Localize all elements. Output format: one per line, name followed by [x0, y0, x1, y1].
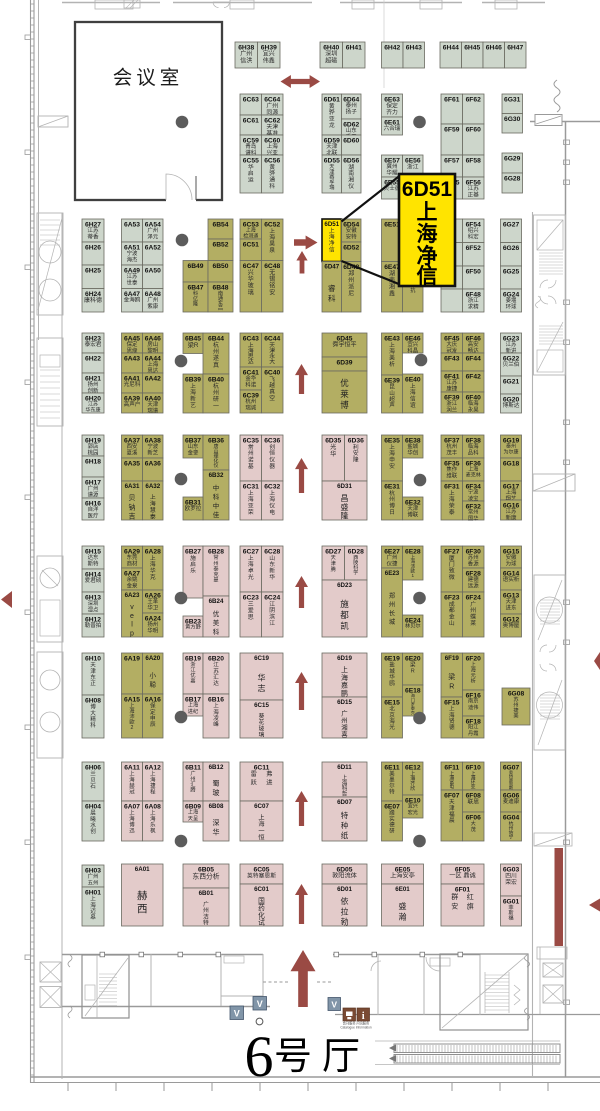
svg-text:东西分析: 东西分析 — [192, 871, 219, 880]
svg-text:华明: 华明 — [147, 626, 158, 634]
svg-text:6H04: 6H04 — [85, 804, 101, 811]
svg-text:6D31: 6D31 — [337, 483, 352, 490]
svg-text:6D51: 6D51 — [402, 178, 453, 201]
svg-text:勒普拍: 勒普拍 — [85, 621, 102, 629]
svg-text:泰宏君: 泰宏君 — [85, 340, 102, 348]
svg-text:天津: 天津 — [266, 123, 278, 130]
svg-text:黄骅亚龙: 黄骅亚龙 — [329, 102, 335, 129]
svg-text:6H38: 6H38 — [238, 45, 254, 52]
svg-text:广州: 广州 — [240, 50, 252, 58]
svg-text:远源: 远源 — [468, 581, 479, 589]
svg-text:自洋: 自洋 — [88, 505, 99, 513]
svg-text:信洪: 信洪 — [240, 57, 252, 65]
svg-text:6F50: 6F50 — [466, 269, 482, 276]
svg-text:安徽: 安徽 — [346, 226, 357, 234]
svg-text:山东新华: 山东新华 — [269, 554, 275, 581]
svg-text:6F62: 6F62 — [466, 97, 482, 104]
svg-text:瑞诚: 瑞诚 — [245, 403, 256, 411]
svg-text:6F61: 6F61 — [444, 97, 460, 104]
svg-text:6A36: 6A36 — [145, 461, 161, 468]
svg-text:南京: 南京 — [468, 697, 478, 705]
svg-text:6A19: 6A19 — [124, 656, 140, 663]
svg-text:保定: 保定 — [127, 340, 138, 348]
svg-text:泰州: 泰州 — [346, 101, 357, 109]
svg-text:6B24: 6B24 — [209, 598, 224, 605]
svg-text:姜堰: 姜堰 — [506, 296, 517, 304]
svg-text:保定: 保定 — [386, 101, 398, 109]
svg-text:杭州研一: 杭州研一 — [213, 382, 219, 410]
svg-text:6E35: 6E35 — [384, 438, 400, 445]
svg-text:6A16: 6A16 — [145, 697, 161, 704]
svg-text:6D01: 6D01 — [337, 886, 352, 893]
svg-text:苏州捷美: 苏州捷美 — [513, 695, 519, 719]
svg-text:上海嘉鹏: 上海嘉鹏 — [341, 665, 348, 697]
svg-text:浙江优嘉: 浙江优嘉 — [190, 660, 195, 684]
svg-text:山东: 山东 — [188, 442, 199, 450]
svg-text:宁波: 宁波 — [147, 442, 158, 450]
svg-text:博斯达: 博斯达 — [503, 401, 520, 409]
svg-text:6H26: 6H26 — [85, 245, 101, 252]
svg-text:6H22: 6H22 — [85, 356, 101, 363]
svg-text:求精: 求精 — [468, 302, 479, 310]
svg-text:6C15: 6C15 — [254, 702, 269, 709]
svg-text:6D39: 6D39 — [337, 360, 353, 367]
svg-text:广州: 广州 — [387, 553, 398, 561]
svg-text:维联: 维联 — [446, 471, 457, 479]
svg-text:浙江: 浙江 — [407, 162, 419, 170]
svg-text:润兰: 润兰 — [446, 405, 457, 413]
svg-text:广州湘喜: 广州湘喜 — [341, 709, 348, 739]
svg-text:绍兴: 绍兴 — [468, 226, 479, 234]
svg-text:扬子: 扬子 — [346, 108, 358, 116]
svg-text:北京海光: 北京海光 — [389, 705, 395, 732]
svg-text:6H18: 6H18 — [85, 459, 101, 466]
svg-text:6F44: 6F44 — [466, 356, 482, 363]
svg-text:苏州: 苏州 — [468, 553, 479, 561]
svg-text:6A43: 6A43 — [124, 356, 140, 363]
svg-text:天津赛孚瑞: 天津赛孚瑞 — [329, 163, 335, 191]
svg-text:郭店: 郭店 — [88, 442, 99, 450]
svg-text:常州: 常州 — [468, 508, 478, 516]
svg-text:上海卓光: 上海卓光 — [248, 554, 254, 581]
svg-text:6D52: 6D52 — [343, 245, 359, 252]
svg-text:兴华玻璃: 兴华玻璃 — [248, 269, 254, 297]
svg-text:昌盛隆: 昌盛隆 — [341, 494, 349, 520]
svg-text:葵花玻璃: 葵花玻璃 — [259, 712, 265, 739]
svg-text:会议室: 会议室 — [113, 67, 184, 89]
svg-text:大茂: 大茂 — [471, 819, 476, 833]
svg-text:6D19: 6D19 — [337, 655, 352, 662]
svg-text:6C63: 6C63 — [243, 97, 259, 104]
svg-text:V: V — [257, 999, 263, 1009]
svg-text:6H08: 6H08 — [85, 698, 101, 705]
svg-text:光尼科: 光尼科 — [124, 380, 141, 388]
svg-text:6F24: 6F24 — [466, 595, 482, 602]
svg-text:6H43: 6H43 — [406, 45, 422, 52]
svg-text:宜兴: 宜兴 — [408, 802, 418, 810]
svg-text:踏实德研: 踏实德研 — [389, 808, 395, 834]
svg-text:紫康: 紫康 — [147, 302, 158, 310]
svg-text:6G26: 6G26 — [503, 245, 520, 252]
svg-text:欧罗拉: 欧罗拉 — [185, 504, 202, 512]
svg-text:深圳: 深圳 — [88, 599, 99, 607]
svg-text:6G28: 6G28 — [504, 176, 521, 183]
svg-text:菲斯福: 菲斯福 — [508, 903, 513, 921]
svg-text:6C01: 6C01 — [254, 886, 269, 893]
svg-text:优莱博: 优莱博 — [340, 378, 349, 410]
svg-text:6B32: 6B32 — [209, 472, 224, 479]
svg-text:天津福晨: 天津福晨 — [449, 799, 455, 825]
svg-text:6A35: 6A35 — [124, 461, 140, 468]
svg-text:6D45: 6D45 — [337, 336, 353, 343]
svg-text:6H24: 6H24 — [85, 291, 101, 298]
svg-text:进东: 进东 — [506, 603, 517, 611]
svg-text:华卫: 华卫 — [147, 603, 158, 611]
svg-text:6H10: 6H10 — [85, 656, 101, 663]
svg-text:商材: 商材 — [127, 559, 138, 567]
svg-text:6C47: 6C47 — [243, 263, 259, 270]
svg-text:6F01: 6F01 — [455, 887, 471, 894]
svg-text:6C07: 6C07 — [254, 803, 269, 810]
svg-text:6A01: 6A01 — [135, 866, 150, 873]
svg-text:6A53: 6A53 — [124, 222, 140, 229]
svg-text:6H25: 6H25 — [85, 268, 101, 275]
svg-text:江阴滨江: 江阴滨江 — [269, 601, 275, 627]
svg-text:浙江: 浙江 — [468, 296, 479, 304]
svg-text:6E01: 6E01 — [395, 886, 410, 893]
svg-text:上海捷程: 上海捷程 — [150, 769, 156, 795]
svg-text:上海美析: 上海美析 — [389, 341, 395, 368]
svg-text:6D47: 6D47 — [324, 264, 339, 271]
svg-text:无锡铭安: 无锡铭安 — [269, 270, 275, 297]
svg-text:斯特: 斯特 — [88, 559, 99, 567]
svg-text:6E20: 6E20 — [405, 656, 421, 663]
svg-text:为球: 为球 — [506, 559, 517, 567]
svg-text:检测通: 检测通 — [243, 233, 258, 240]
svg-text:安特: 安特 — [346, 232, 357, 240]
svg-text:6C52: 6C52 — [264, 222, 280, 229]
svg-text:康捷: 康捷 — [446, 384, 457, 392]
svg-text:上海: 上海 — [267, 142, 279, 150]
svg-text:上海元析: 上海元析 — [471, 660, 476, 684]
svg-text:品科: 品科 — [468, 448, 479, 456]
svg-text:进纪: 进纪 — [188, 707, 198, 715]
svg-text:6A42: 6A42 — [145, 376, 161, 383]
svg-text:6H46: 6H46 — [486, 45, 502, 52]
svg-text:上海荣泰: 上海荣泰 — [449, 489, 455, 516]
svg-text:西陵科学: 西陵科学 — [353, 555, 358, 576]
svg-text:上海赫冠: 上海赫冠 — [129, 769, 135, 795]
svg-text:深圳: 深圳 — [325, 50, 337, 58]
svg-text:上海思达: 上海思达 — [248, 341, 254, 366]
svg-text:科诺: 科诺 — [245, 380, 256, 388]
svg-text:6A23: 6A23 — [125, 592, 140, 599]
svg-text:上海华克: 上海华克 — [150, 554, 156, 581]
svg-text:6F15: 6F15 — [444, 700, 460, 707]
svg-text:6D51: 6D51 — [324, 221, 339, 228]
svg-text:上海慧泰: 上海慧泰 — [150, 493, 156, 520]
svg-text:睿科: 睿科 — [328, 284, 336, 303]
svg-text:上海: 上海 — [506, 488, 517, 496]
svg-text:厦门致微: 厦门致微 — [449, 555, 455, 581]
svg-text:6F23: 6F23 — [444, 595, 460, 602]
svg-text:6C31: 6C31 — [243, 484, 259, 491]
svg-text:天津: 天津 — [407, 505, 418, 512]
svg-text:6C51: 6C51 — [243, 242, 259, 249]
svg-text:爱君硕: 爱君硕 — [85, 576, 102, 584]
svg-text:6C23: 6C23 — [243, 595, 259, 602]
svg-text:广州蝶莱: 广州蝶莱 — [470, 600, 476, 627]
svg-text:广州: 广州 — [147, 226, 158, 234]
svg-text:6G04: 6G04 — [503, 815, 520, 822]
svg-text:四川: 四川 — [505, 872, 517, 879]
svg-text:6D23: 6D23 — [337, 582, 352, 589]
svg-text:上海新艺: 上海新艺 — [190, 382, 196, 409]
svg-text:东莞: 东莞 — [127, 553, 138, 561]
svg-text:6H45: 6H45 — [464, 45, 480, 52]
svg-text:6C24: 6C24 — [264, 595, 280, 602]
svg-text:金华: 金华 — [245, 374, 256, 382]
svg-text:迪伟: 迪伟 — [468, 703, 478, 711]
svg-text:6H47: 6H47 — [507, 45, 523, 52]
svg-text:科亿隆: 科亿隆 — [193, 289, 199, 307]
svg-text:南通东吕: 南通东吕 — [218, 289, 224, 311]
svg-text:6H06: 6H06 — [85, 765, 101, 772]
svg-text:青岛: 青岛 — [245, 142, 257, 150]
svg-text:贝钠吉: 贝钠吉 — [129, 494, 136, 520]
svg-text:6D61: 6D61 — [324, 97, 340, 104]
svg-text:6B08: 6B08 — [209, 803, 224, 810]
svg-text:光华: 光华 — [330, 443, 336, 458]
svg-text:贝兰伯: 贝兰伯 — [503, 360, 520, 368]
svg-text:天津: 天津 — [326, 143, 338, 150]
svg-text:麦迪康: 麦迪康 — [503, 797, 520, 805]
svg-text:上海一恒: 上海一恒 — [258, 813, 264, 841]
svg-text:常州诺基: 常州诺基 — [248, 443, 254, 470]
svg-text:高声户: 高声户 — [124, 400, 141, 408]
svg-text:江苏: 江苏 — [127, 272, 138, 280]
svg-text:湖南湘鑫: 湖南湘鑫 — [389, 270, 395, 298]
svg-text:6B50: 6B50 — [213, 263, 229, 270]
svg-text:湖南湘仪: 湖南湘仪 — [348, 163, 354, 190]
svg-text:江苏: 江苏 — [88, 401, 98, 408]
svg-text:江苏汇达: 江苏汇达 — [213, 662, 219, 688]
svg-text:6F60: 6F60 — [466, 127, 482, 134]
svg-text:6B12: 6B12 — [209, 764, 224, 771]
svg-text:6F27: 6F27 — [444, 549, 460, 556]
svg-text:临海: 临海 — [468, 442, 479, 450]
svg-text:江苏: 江苏 — [506, 340, 517, 348]
svg-text:仪捷: 仪捷 — [387, 559, 398, 567]
svg-text:泰州: 泰州 — [506, 443, 516, 450]
svg-text:海杰: 海杰 — [127, 255, 138, 263]
svg-text:广州: 广州 — [266, 101, 278, 109]
svg-text:超磁: 超磁 — [325, 57, 337, 65]
svg-text:上海: 上海 — [188, 808, 198, 816]
svg-text:新康: 新康 — [506, 513, 517, 521]
svg-text:兰贝石: 兰贝石 — [90, 770, 96, 790]
svg-text:敦阳流体: 敦阳流体 — [332, 872, 358, 880]
svg-text:6A32: 6A32 — [145, 483, 160, 490]
svg-text:创恒仪器: 创恒仪器 — [269, 443, 275, 470]
svg-text:6B27: 6B27 — [185, 549, 201, 556]
svg-text:国药化试: 国药化试 — [258, 897, 265, 927]
svg-text:一区 鼎诚: 一区 鼎诚 — [449, 872, 475, 880]
svg-text:谱源: 谱源 — [88, 490, 99, 498]
svg-text:临海: 临海 — [468, 399, 479, 407]
svg-text:优美科: 优美科 — [213, 609, 220, 636]
svg-text:6B39: 6B39 — [185, 377, 201, 384]
svg-text:上海净信: 上海净信 — [329, 226, 335, 253]
svg-text:医疗: 医疗 — [88, 511, 99, 519]
svg-text:6: 6 — [245, 1024, 274, 1089]
svg-text:6E31: 6E31 — [384, 484, 400, 491]
svg-text:6A28: 6A28 — [145, 549, 161, 556]
svg-text:号厅: 号厅 — [274, 1036, 370, 1078]
svg-text:6C56: 6C56 — [264, 158, 280, 165]
svg-text:天津: 天津 — [506, 598, 517, 605]
svg-text:国华: 国华 — [468, 514, 478, 522]
svg-text:宁波: 宁波 — [468, 488, 479, 496]
svg-text:晨曦水创: 晨曦水创 — [90, 810, 96, 836]
svg-text:宜兴: 宜兴 — [407, 340, 418, 348]
svg-text:6F31: 6F31 — [444, 484, 460, 491]
svg-text:6B01: 6B01 — [199, 890, 214, 897]
svg-text:科宏: 科宏 — [468, 232, 479, 240]
svg-text:6C48: 6C48 — [264, 263, 280, 270]
svg-text:6C55: 6C55 — [243, 158, 259, 165]
svg-text:6F43: 6F43 — [444, 356, 460, 363]
svg-text:6E43: 6E43 — [384, 336, 400, 343]
svg-text:上海亚荣: 上海亚荣 — [248, 489, 254, 516]
svg-text:杭州遂真: 杭州遂真 — [213, 341, 219, 369]
svg-text:上海净信: 上海净信 — [417, 201, 438, 288]
svg-text:杭州佑宁: 杭州佑宁 — [509, 820, 514, 841]
svg-text:6A52: 6A52 — [145, 245, 161, 252]
svg-text:伟鑫: 伟鑫 — [263, 57, 275, 65]
svg-text:上海齐欣: 上海齐欣 — [410, 770, 415, 792]
svg-text:6C28: 6C28 — [264, 549, 280, 556]
svg-text:6D60: 6D60 — [343, 138, 359, 145]
svg-text:华启运: 华启运 — [248, 163, 254, 184]
svg-text:华东康: 华东康 — [85, 407, 100, 414]
svg-text:6F19: 6F19 — [445, 655, 460, 662]
svg-text:余姚: 余姚 — [127, 575, 138, 583]
svg-text:6F58: 6F58 — [466, 158, 482, 165]
svg-text:6E40: 6E40 — [405, 377, 421, 384]
svg-text:新芝: 新芝 — [147, 448, 158, 456]
svg-text:6D11: 6D11 — [337, 764, 352, 771]
svg-text:六合瑞: 六合瑞 — [384, 124, 401, 132]
svg-text:6C36: 6C36 — [264, 438, 280, 445]
svg-text:环球: 环球 — [506, 302, 517, 310]
svg-text:广州洁特: 广州洁特 — [203, 900, 209, 927]
svg-text:华耀: 华耀 — [386, 169, 398, 177]
svg-text:上海博迅: 上海博迅 — [129, 808, 135, 834]
svg-text:黄方野: 黄方野 — [185, 623, 201, 631]
svg-text:6F10: 6F10 — [466, 765, 482, 772]
svg-text:赫西: 赫西 — [137, 890, 148, 915]
svg-text:成都金山: 成都金山 — [449, 600, 455, 627]
svg-text:西安: 西安 — [127, 442, 138, 450]
svg-text:6B44: 6B44 — [208, 336, 224, 343]
svg-text:杭州博日: 杭州博日 — [389, 489, 395, 516]
svg-text:扬州: 扬州 — [88, 380, 99, 388]
svg-text:永昊: 永昊 — [468, 405, 479, 413]
svg-text:香源: 香源 — [468, 559, 479, 567]
svg-text:丹霞: 丹霞 — [468, 730, 478, 737]
svg-text:6H39: 6H39 — [261, 45, 277, 52]
svg-text:特种纸: 特种纸 — [341, 810, 349, 840]
svg-text:6B16: 6B16 — [208, 697, 224, 704]
svg-text:上海贤德: 上海贤德 — [449, 705, 455, 732]
svg-text:杭州: 杭州 — [446, 442, 457, 450]
svg-text:施启乐: 施启乐 — [190, 554, 196, 575]
svg-text:6C32: 6C32 — [264, 484, 280, 491]
svg-text:6E23: 6E23 — [385, 570, 400, 577]
svg-text:6D07: 6D07 — [337, 799, 352, 806]
svg-text:飞越真空: 飞越真空 — [269, 376, 275, 402]
svg-text:博大精科: 博大精科 — [90, 703, 96, 730]
svg-text:6G21: 6G21 — [503, 379, 520, 386]
svg-text:6E19: 6E19 — [384, 656, 400, 663]
svg-text:6F42: 6F42 — [466, 374, 482, 381]
svg-text:6C27: 6C27 — [243, 549, 259, 556]
svg-text:郑州派尼: 郑州派尼 — [348, 270, 354, 298]
svg-text:6F07: 6F07 — [444, 793, 460, 800]
svg-text:江苏: 江苏 — [87, 226, 99, 234]
svg-text:宏光: 宏光 — [408, 808, 418, 816]
svg-text:安徽: 安徽 — [506, 553, 517, 561]
svg-text:宁波: 宁波 — [127, 249, 138, 257]
svg-text:广州: 广州 — [88, 872, 99, 880]
svg-text:6B54: 6B54 — [213, 222, 229, 229]
svg-text:语实析: 语实析 — [503, 575, 520, 583]
svg-text:天津腾: 天津腾 — [331, 554, 337, 573]
svg-text:广州: 广州 — [88, 484, 99, 492]
svg-text:天津东正: 天津东正 — [90, 662, 96, 688]
svg-text:林贝尔: 林贝尔 — [405, 622, 421, 630]
svg-text:大庆: 大庆 — [446, 340, 457, 348]
svg-text:金海鸥: 金海鸥 — [124, 296, 141, 304]
svg-text:上海乐枫: 上海乐枫 — [150, 808, 156, 834]
svg-text:上海: 上海 — [246, 227, 256, 234]
svg-text:天津永大: 天津永大 — [269, 342, 275, 366]
svg-text:杭州: 杭州 — [245, 397, 256, 405]
svg-text:上海申安: 上海申安 — [389, 443, 395, 470]
svg-text:V: V — [234, 1008, 240, 1018]
svg-text:房山: 房山 — [147, 340, 158, 348]
svg-text:英特塞恩斯: 英特塞恩斯 — [247, 871, 276, 879]
svg-text:6F59: 6F59 — [444, 127, 460, 134]
svg-text:6A31: 6A31 — [125, 483, 140, 490]
svg-text:焦作: 焦作 — [446, 465, 457, 473]
svg-text:6G25: 6G25 — [503, 269, 520, 276]
svg-text:6A20: 6A20 — [145, 655, 160, 662]
svg-text:达东: 达东 — [88, 553, 99, 561]
svg-text:康科德: 康科德 — [84, 296, 102, 304]
svg-text:华创: 华创 — [407, 448, 418, 456]
svg-text:6H41: 6H41 — [346, 45, 362, 52]
svg-text:山东: 山东 — [346, 126, 357, 134]
svg-text:浙江: 浙江 — [446, 399, 457, 407]
svg-text:冀州: 冀州 — [386, 162, 397, 170]
svg-text:6A50: 6A50 — [145, 268, 161, 275]
svg-text:蒂香: 蒂香 — [87, 233, 99, 241]
svg-text:荣宏: 荣宏 — [505, 878, 517, 886]
svg-text:6E39: 6E39 — [384, 378, 400, 385]
svg-text:6B40: 6B40 — [208, 377, 224, 384]
